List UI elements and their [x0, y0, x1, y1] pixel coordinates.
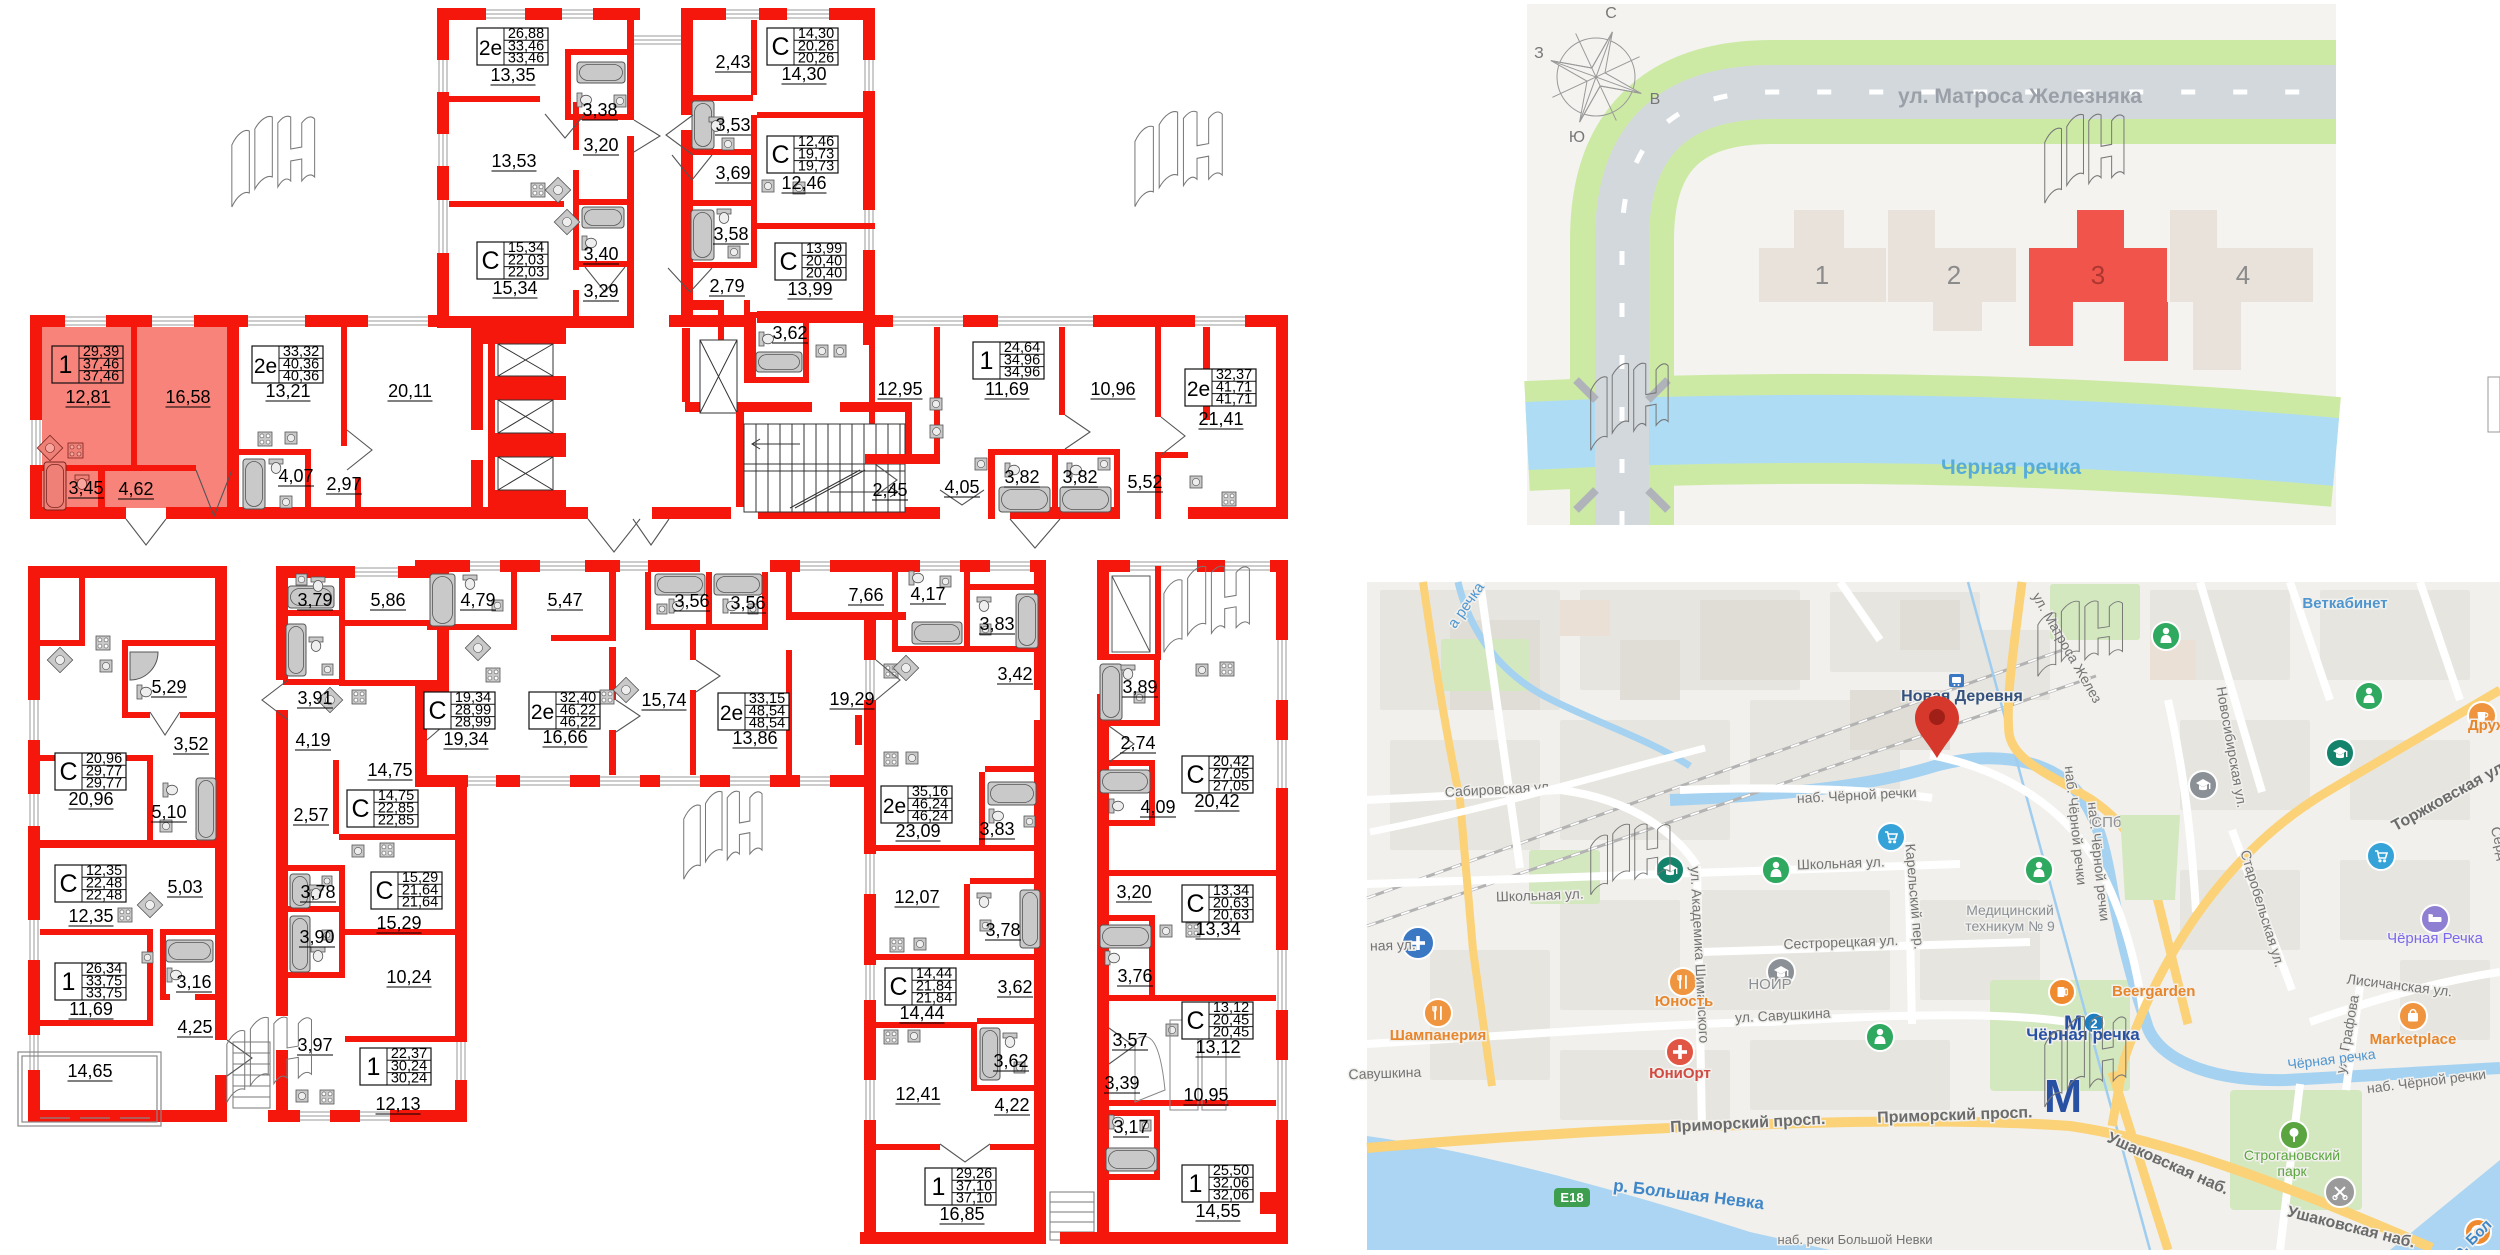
svg-text:10,95: 10,95: [1183, 1085, 1228, 1105]
svg-text:Шампанерия: Шампанерия: [1390, 1027, 1486, 1044]
svg-text:3,78: 3,78: [985, 920, 1020, 940]
svg-text:4,22: 4,22: [994, 1095, 1029, 1115]
svg-text:3,45: 3,45: [68, 478, 103, 498]
svg-text:1: 1: [980, 347, 994, 375]
svg-text:41,71: 41,71: [1216, 392, 1252, 408]
svg-text:C: C: [779, 248, 797, 276]
svg-text:2e: 2e: [531, 701, 554, 724]
svg-text:C: C: [889, 973, 907, 1001]
svg-text:наб. реки Большой Невки: наб. реки Большой Невки: [1778, 1232, 1933, 1247]
svg-text:4,62: 4,62: [118, 479, 153, 499]
svg-text:3,40: 3,40: [583, 244, 618, 264]
svg-text:19,29: 19,29: [829, 689, 874, 709]
svg-text:14,55: 14,55: [1195, 1201, 1240, 1221]
svg-text:3,82: 3,82: [1062, 467, 1097, 487]
svg-text:3,20: 3,20: [1116, 882, 1151, 902]
svg-text:3,39: 3,39: [1104, 1073, 1139, 1093]
svg-text:C: C: [771, 33, 789, 61]
svg-text:3,79: 3,79: [297, 590, 332, 610]
svg-text:2e: 2e: [1187, 378, 1210, 401]
svg-text:7,66: 7,66: [848, 585, 883, 605]
svg-text:3,62: 3,62: [993, 1051, 1028, 1071]
svg-text:Черная речка: Черная речка: [1941, 456, 2081, 479]
svg-text:2: 2: [1947, 260, 1961, 290]
svg-text:2e: 2e: [479, 37, 502, 60]
svg-text:20,42: 20,42: [1194, 791, 1239, 811]
svg-text:1: 1: [59, 351, 73, 379]
svg-text:14,44: 14,44: [899, 1003, 944, 1023]
svg-text:С: С: [1605, 5, 1617, 22]
svg-text:Медицинский: Медицинский: [1966, 902, 2054, 918]
svg-text:2e: 2e: [720, 702, 743, 725]
svg-text:3,38: 3,38: [582, 100, 617, 120]
svg-text:3,76: 3,76: [1117, 966, 1152, 986]
svg-text:14,30: 14,30: [781, 64, 826, 84]
svg-text:16,66: 16,66: [542, 727, 587, 747]
svg-text:13,21: 13,21: [265, 381, 310, 401]
svg-text:3,42: 3,42: [997, 664, 1032, 684]
svg-text:13,86: 13,86: [732, 728, 777, 748]
svg-text:3,91: 3,91: [297, 688, 332, 708]
svg-text:15,34: 15,34: [492, 278, 537, 298]
svg-text:12,13: 12,13: [375, 1094, 420, 1114]
svg-text:3,62: 3,62: [772, 323, 807, 343]
svg-text:19,34: 19,34: [443, 729, 488, 749]
svg-text:1: 1: [1189, 1170, 1203, 1198]
svg-text:5,10: 5,10: [151, 802, 186, 822]
svg-text:3,83: 3,83: [979, 614, 1014, 634]
svg-text:11,69: 11,69: [69, 999, 113, 1019]
svg-text:37,46: 37,46: [83, 369, 119, 385]
svg-text:4: 4: [2236, 260, 2250, 290]
svg-text:2,79: 2,79: [709, 276, 744, 296]
svg-text:4,19: 4,19: [295, 730, 330, 750]
svg-text:C: C: [59, 870, 77, 898]
svg-text:5,52: 5,52: [1127, 472, 1162, 492]
svg-text:4,09: 4,09: [1140, 797, 1175, 817]
svg-text:3,56: 3,56: [674, 591, 709, 611]
svg-text:14,65: 14,65: [67, 1061, 112, 1081]
svg-text:12,46: 12,46: [781, 173, 826, 193]
svg-text:Beergarden: Beergarden: [2112, 983, 2195, 1000]
svg-text:Marketplace: Marketplace: [2370, 1031, 2457, 1048]
svg-text:22,03: 22,03: [508, 265, 544, 281]
svg-text:3,53: 3,53: [715, 115, 750, 135]
svg-text:5,47: 5,47: [547, 590, 582, 610]
svg-text:15,29: 15,29: [376, 913, 421, 933]
svg-text:3,82: 3,82: [1004, 467, 1039, 487]
svg-text:10,96: 10,96: [1090, 379, 1135, 399]
svg-text:2e: 2e: [254, 355, 277, 378]
svg-text:2,45: 2,45: [872, 480, 907, 500]
svg-text:13,53: 13,53: [491, 151, 536, 171]
svg-text:НОИР: НОИР: [1748, 976, 1791, 993]
svg-text:4,25: 4,25: [177, 1017, 212, 1037]
svg-text:3,89: 3,89: [1122, 677, 1157, 697]
svg-text:4,17: 4,17: [910, 584, 945, 604]
svg-text:2,74: 2,74: [1120, 733, 1155, 753]
svg-text:11,69: 11,69: [985, 379, 1029, 399]
svg-text:Савушкина: Савушкина: [1348, 1064, 1422, 1083]
svg-text:1: 1: [932, 1173, 946, 1201]
svg-text:4,79: 4,79: [460, 590, 495, 610]
svg-text:3,52: 3,52: [173, 734, 208, 754]
svg-text:13,99: 13,99: [787, 279, 832, 299]
svg-text:12,07: 12,07: [894, 887, 939, 907]
svg-text:C: C: [59, 758, 77, 786]
svg-text:ная ул.: ная ул.: [1370, 936, 1416, 954]
svg-text:ул. Матроса Железняка: ул. Матроса Железняка: [1898, 85, 2142, 108]
svg-text:Строгановский: Строгановский: [2244, 1147, 2340, 1163]
svg-text:Дружб: Дружб: [2468, 717, 2500, 734]
svg-text:3,69: 3,69: [715, 163, 750, 183]
svg-text:C: C: [351, 795, 369, 823]
svg-text:1: 1: [1815, 260, 1829, 290]
svg-text:12,81: 12,81: [65, 387, 110, 407]
svg-text:Новая Деревня: Новая Деревня: [1901, 688, 2023, 705]
svg-text:3,56: 3,56: [730, 593, 765, 613]
svg-text:14,75: 14,75: [367, 760, 412, 780]
svg-text:22,85: 22,85: [378, 813, 414, 829]
svg-text:3,20: 3,20: [583, 135, 618, 155]
svg-text:техникум № 9: техникум № 9: [1965, 918, 2055, 934]
svg-text:20,40: 20,40: [806, 266, 842, 282]
svg-text:Юность: Юность: [1655, 993, 1713, 1010]
svg-text:C: C: [1186, 1007, 1204, 1035]
svg-text:ЮниОрт: ЮниОрт: [1649, 1065, 1711, 1082]
svg-text:4,05: 4,05: [944, 477, 979, 497]
svg-text:21,41: 21,41: [1198, 409, 1243, 429]
svg-text:12,95: 12,95: [877, 379, 922, 399]
svg-text:21,64: 21,64: [402, 895, 438, 911]
svg-text:20,11: 20,11: [388, 381, 432, 401]
svg-text:15,74: 15,74: [641, 690, 686, 710]
svg-text:23,09: 23,09: [895, 821, 940, 841]
svg-text:16,58: 16,58: [165, 387, 210, 407]
svg-text:22,48: 22,48: [86, 888, 122, 904]
svg-text:16,85: 16,85: [939, 1204, 984, 1224]
svg-text:3: 3: [2091, 260, 2105, 290]
svg-text:C: C: [771, 141, 789, 169]
svg-text:3,90: 3,90: [299, 927, 334, 947]
svg-text:2e: 2e: [883, 795, 906, 818]
svg-text:30,24: 30,24: [391, 1071, 427, 1087]
svg-text:3,57: 3,57: [1112, 1030, 1147, 1050]
svg-text:парк: парк: [2277, 1163, 2307, 1179]
svg-text:C: C: [481, 247, 499, 275]
svg-text:C: C: [1186, 761, 1204, 789]
svg-text:3,17: 3,17: [1113, 1117, 1148, 1137]
svg-text:5,29: 5,29: [151, 677, 186, 697]
svg-text:Школьная ул.: Школьная ул.: [1496, 885, 1584, 904]
svg-text:4,07: 4,07: [278, 466, 313, 486]
svg-text:З: З: [1534, 45, 1544, 62]
svg-text:2,57: 2,57: [293, 805, 328, 825]
svg-text:3,78: 3,78: [300, 882, 335, 902]
svg-text:1: 1: [367, 1053, 381, 1081]
svg-text:13,34: 13,34: [1195, 919, 1240, 939]
svg-text:Веткабинет: Веткабинет: [2302, 595, 2387, 612]
svg-text:C: C: [375, 877, 393, 905]
svg-text:13,35: 13,35: [490, 65, 535, 85]
svg-text:3,58: 3,58: [713, 224, 748, 244]
svg-text:3,83: 3,83: [979, 819, 1014, 839]
svg-text:3,62: 3,62: [997, 977, 1032, 997]
svg-text:13,12: 13,12: [1195, 1037, 1240, 1057]
svg-text:2,97: 2,97: [326, 474, 361, 494]
svg-text:20,96: 20,96: [68, 789, 113, 809]
svg-text:Чёрная Речка: Чёрная Речка: [2387, 930, 2483, 947]
svg-text:C: C: [1186, 890, 1204, 918]
svg-text:2,43: 2,43: [715, 52, 750, 72]
svg-text:E18: E18: [1560, 1190, 1583, 1205]
svg-text:C: C: [428, 697, 446, 725]
svg-text:12,41: 12,41: [895, 1084, 940, 1104]
svg-text:Ю: Ю: [1569, 129, 1585, 146]
svg-text:12,35: 12,35: [68, 906, 113, 926]
svg-text:Школьная ул.: Школьная ул.: [1797, 853, 1885, 872]
svg-text:5,03: 5,03: [167, 877, 202, 897]
svg-text:В: В: [1650, 91, 1661, 108]
svg-text:3,16: 3,16: [176, 972, 211, 992]
svg-text:1: 1: [62, 968, 76, 996]
svg-text:5,86: 5,86: [370, 590, 405, 610]
svg-text:3,29: 3,29: [583, 281, 618, 301]
svg-text:10,24: 10,24: [386, 967, 431, 987]
